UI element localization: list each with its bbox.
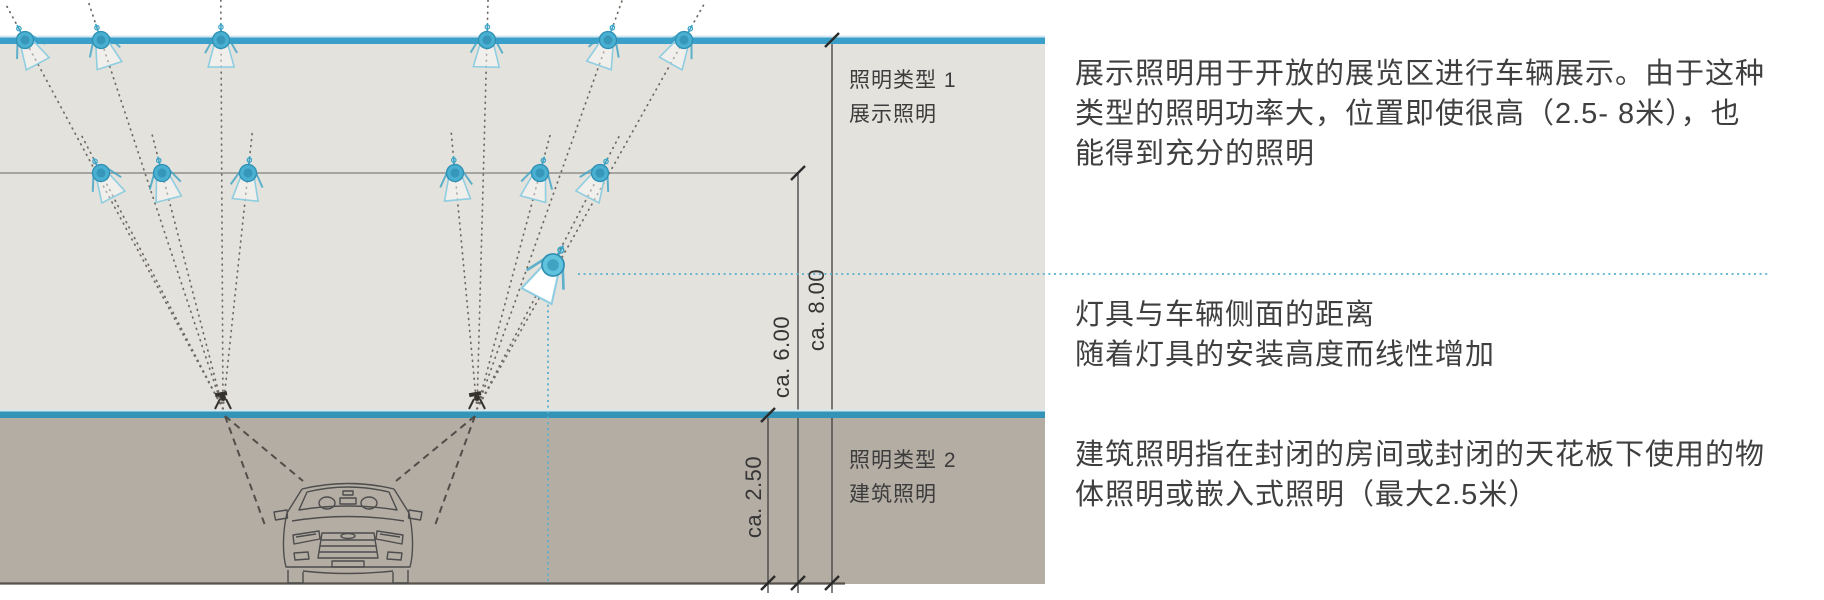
lighting-types-infographic: 照明类型 1 展示照明 照明类型 2 建筑照明 ca. 8.00 ca. 6.0…	[0, 0, 1824, 600]
dimension-label-6m: ca. 6.00	[769, 297, 795, 417]
zone1-label: 照明类型 1 展示照明	[849, 64, 957, 132]
dimension-label-2-5m: ca. 2.50	[741, 437, 767, 557]
note-fixture-distance: 灯具与车辆侧面的距离 随着灯具的安装高度而线性增加	[1075, 295, 1824, 375]
note-display-lighting: 展示照明用于开放的展览区进行车辆展示。由于这种 类型的照明功率大，位置即使很高（…	[1075, 54, 1824, 174]
spotlight-icon	[205, 23, 237, 67]
ceiling-line-enclosed	[0, 410, 1045, 419]
ceiling-line-track	[0, 36, 1045, 45]
zone2-label: 照明类型 2 建筑照明	[849, 444, 957, 512]
note-architectural-lighting: 建筑照明指在封闭的房间或封闭的天花板下使用的物 体照明或嵌入式照明（最大2.5米…	[1075, 435, 1824, 515]
dimension-label-8m: ca. 8.00	[804, 250, 830, 370]
